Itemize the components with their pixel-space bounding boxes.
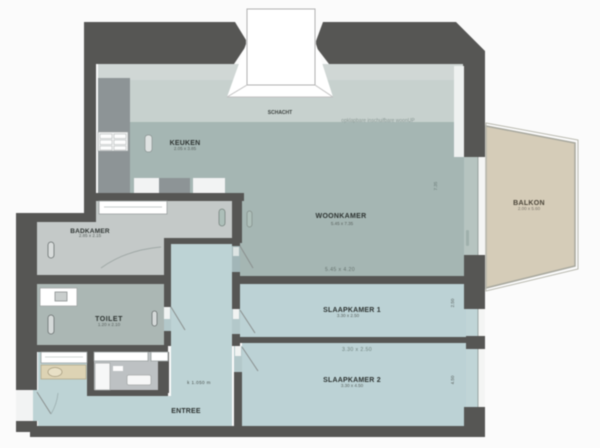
svg-text:5.45 x 7.35: 5.45 x 7.35 (331, 221, 354, 226)
svg-text:2.00 x 5.60: 2.00 x 5.60 (518, 206, 541, 211)
svg-text:ENTREE: ENTREE (171, 408, 201, 415)
svg-text:3.30 x 2.50: 3.30 x 2.50 (342, 347, 372, 353)
svg-text:2.05 x 3.85: 2.05 x 3.85 (174, 146, 197, 151)
svg-text:k 1.050 m: k 1.050 m (187, 380, 211, 385)
svg-text:4.50: 4.50 (450, 375, 455, 384)
svg-text:3.30 x 4.50: 3.30 x 4.50 (341, 383, 364, 388)
svg-text:2.85 x 2.15: 2.85 x 2.15 (79, 233, 102, 238)
svg-text:7.35: 7.35 (433, 181, 438, 190)
svg-text:3.30 x 2.50: 3.30 x 2.50 (337, 313, 360, 318)
svg-text:opklapbare inschuifbare woonUP: opklapbare inschuifbare woonUP (341, 118, 415, 124)
svg-text:WOONKAMER: WOONKAMER (316, 213, 367, 220)
svg-text:2.50: 2.50 (450, 298, 455, 307)
svg-text:5.45 x 4.20: 5.45 x 4.20 (325, 267, 355, 273)
svg-text:1.20 x 2.10: 1.20 x 2.10 (98, 322, 121, 327)
svg-text:SCHACHT: SCHACHT (268, 110, 292, 116)
